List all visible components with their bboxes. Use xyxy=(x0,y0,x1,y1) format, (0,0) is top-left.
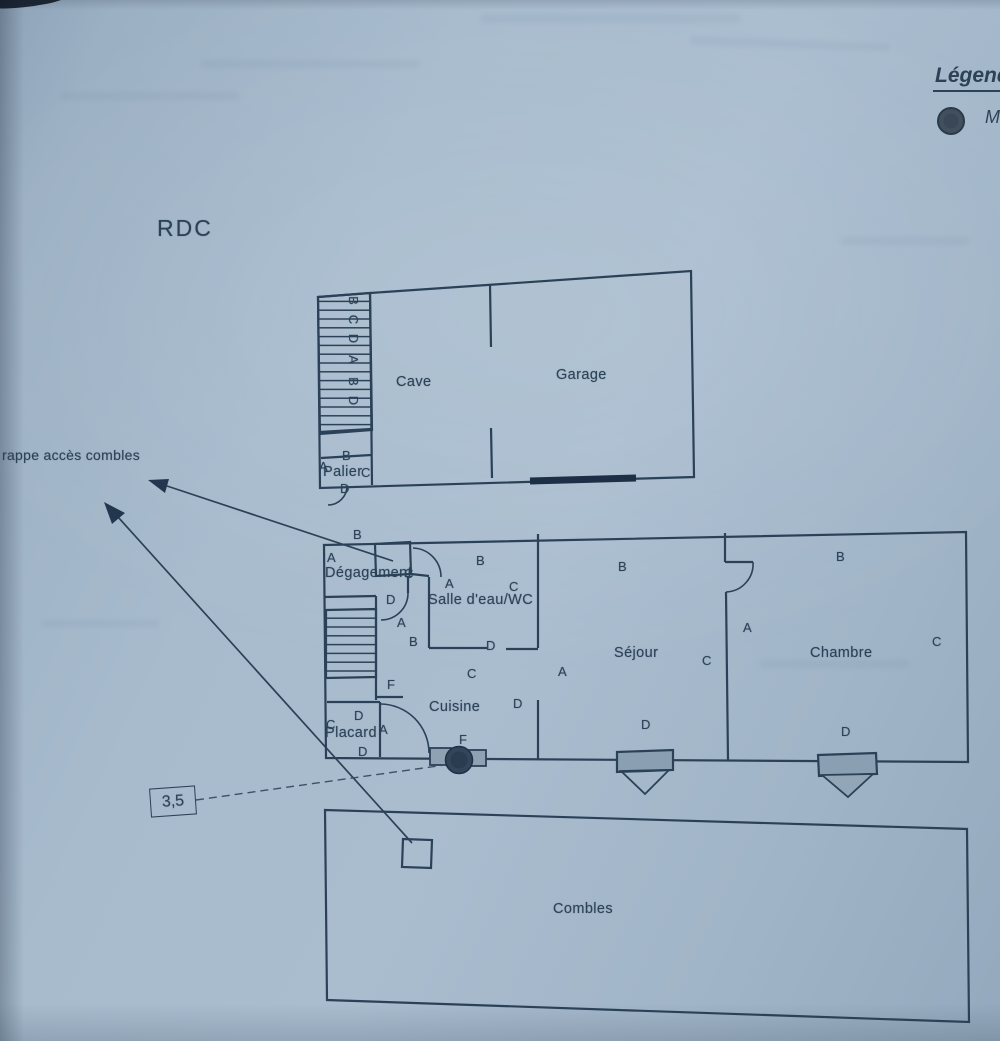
wall-letter: B xyxy=(836,549,845,564)
wall-letter: D xyxy=(641,717,650,732)
wall-letter: D xyxy=(513,696,522,711)
wall-letter: D xyxy=(346,334,361,343)
wall-letter: C xyxy=(326,717,335,732)
wall-letter: A xyxy=(743,620,752,635)
wall-letter: B xyxy=(346,296,361,305)
wall-letter: F xyxy=(459,732,467,747)
room-label-palier: Palier xyxy=(323,464,362,480)
wall-letter: C xyxy=(932,634,941,649)
room-label-s-jour: Séjour xyxy=(614,645,658,661)
wall-letter: B xyxy=(346,377,361,386)
room-label-cuisine: Cuisine xyxy=(429,699,480,715)
room-label-garage: Garage xyxy=(556,367,607,383)
wall-letter: B xyxy=(342,448,351,463)
wall-letter: B xyxy=(618,559,627,574)
wall-letter: B xyxy=(476,553,485,568)
wall-letter: F xyxy=(387,677,395,692)
wall-letter: A xyxy=(445,576,454,591)
room-label-d-gagement: Dégagement xyxy=(325,565,412,581)
wall-letter: D xyxy=(386,592,395,607)
wall-letter: C xyxy=(702,653,711,668)
wall-letter: A xyxy=(319,459,328,474)
wall-letter: A xyxy=(327,550,336,565)
wall-letter: D xyxy=(358,744,367,759)
wall-letter: C xyxy=(509,579,518,594)
wall-letter: A xyxy=(346,355,361,364)
room-label-chambre: Chambre xyxy=(810,645,872,661)
wall-letter: A xyxy=(558,664,567,679)
wall-letter: D xyxy=(346,396,361,405)
wall-letter: B xyxy=(409,634,418,649)
room-label-cave: Cave xyxy=(396,374,431,390)
wall-letter: A xyxy=(379,722,388,737)
wall-letter: D xyxy=(841,724,850,739)
wall-letter: C xyxy=(361,465,370,480)
wall-letter: C xyxy=(467,666,476,681)
wall-letter: C xyxy=(404,566,413,581)
wall-letter: B xyxy=(353,527,362,542)
diagram-labels-layer: CaveGaragePalierDégagementSalle d'eau/WC… xyxy=(0,0,1000,1041)
scanned-floorplan-page: { "floor_label": "RDC", "legend": { "tit… xyxy=(0,0,1000,1041)
wall-letter: D xyxy=(354,708,363,723)
wall-letter: A xyxy=(397,615,406,630)
room-label-combles: Combles xyxy=(553,901,613,917)
wall-letter: C xyxy=(346,315,361,324)
wall-letter: D xyxy=(486,638,495,653)
text-layer: RDC Légende M rappe accès combles 3,5 Ca… xyxy=(0,0,1000,1041)
wall-letter: D xyxy=(340,481,349,496)
room-label-salle-d-eau-wc: Salle d'eau/WC xyxy=(428,592,533,608)
